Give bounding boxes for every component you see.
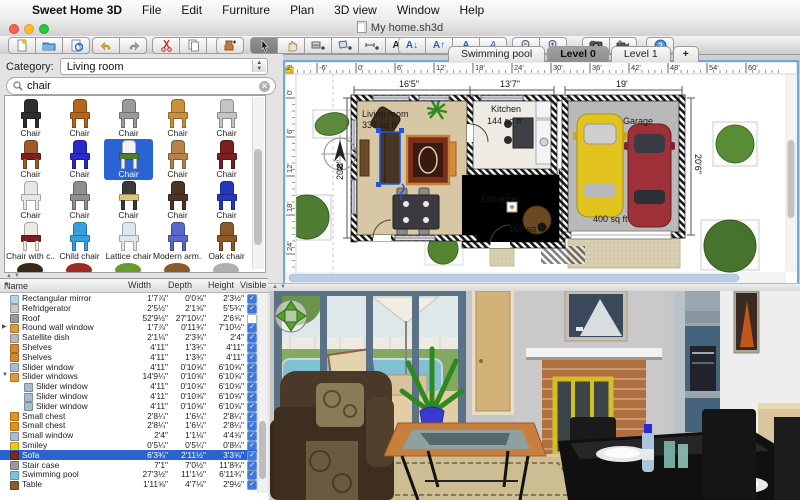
chair-icon (117, 99, 141, 128)
svg-text:400 sq ft: 400 sq ft (593, 214, 628, 224)
furniture-name: Shelves (22, 352, 52, 362)
chair-icon (19, 140, 43, 169)
dimension-value: 6'10⅝" (198, 371, 244, 381)
undo-button[interactable] (92, 37, 120, 54)
table-row[interactable]: Small window2'4"1'1⅛"4'4⅝"✓ (0, 430, 258, 440)
table-row[interactable]: Swimming pool27'3½"11'1½"6'11¾"✓ (0, 469, 258, 479)
catalog-item[interactable]: Chair (104, 139, 153, 180)
dimension-value: 6'10⅝" (198, 391, 244, 401)
svg-text:339 sq ft: 339 sq ft (362, 120, 397, 130)
svg-text:0': 0' (358, 63, 364, 72)
catalog-item[interactable]: Chair (202, 139, 251, 180)
svg-text:Kitchen: Kitchen (491, 104, 521, 114)
chair-icon (215, 99, 239, 128)
painting-right (734, 291, 759, 353)
catalog-item-label: Chair (104, 169, 153, 179)
svg-text:24': 24' (514, 63, 524, 72)
chair-icon (215, 222, 239, 251)
column-width[interactable]: Width (128, 280, 151, 290)
furniture-name: Swimming pool (22, 469, 79, 479)
catalog-item-label: Modern arm... (153, 251, 202, 261)
level-tabs: Swimming poolLevel 0Level 1+ (448, 46, 701, 62)
furniture-name: Slider window (36, 381, 88, 391)
chair-icon (117, 222, 141, 251)
create-dimensions-button[interactable] (359, 37, 386, 54)
catalog-item-label: Chair with c... (6, 251, 55, 261)
svg-text:24': 24' (285, 241, 294, 251)
category-label: Category: (6, 61, 54, 73)
tab-level-0[interactable]: Level 0 (547, 46, 609, 62)
dimension-value: 2'9½" (198, 479, 244, 489)
chair-icon (117, 181, 141, 210)
window-title: My home.sh3d (0, 21, 800, 34)
furniture-name: Round wall window (22, 322, 94, 332)
table-row[interactable]: Shelves4'11"1'3¾"4'11"✓ (0, 342, 258, 352)
painting (565, 291, 627, 341)
furniture-name: Sofa (22, 450, 39, 460)
chair-icon (215, 181, 239, 210)
svg-text:-12': -12' (285, 63, 293, 72)
svg-text:54': 54' (709, 63, 719, 72)
dimension-value: 6'11¾" (198, 469, 244, 479)
column-visible[interactable]: Visible (240, 280, 266, 290)
catalog-item-label: Chair (55, 210, 104, 220)
furniture-name: Small chest (22, 411, 65, 421)
category-select[interactable]: Living room ▲▼ (60, 58, 268, 75)
view-3d[interactable] (270, 291, 800, 500)
catalog-item[interactable]: Modern arm... (153, 221, 202, 262)
catalog-item[interactable]: Chair (55, 98, 104, 139)
table-row[interactable]: Roof52'9½"27'10¼"2'6⅝" (0, 313, 258, 323)
stepper-icon[interactable]: ▲▼ (252, 60, 266, 72)
dimension-value: 4'4⅝" (198, 430, 244, 440)
catalog-item[interactable]: Child chair (55, 221, 104, 262)
svg-text:48': 48' (670, 63, 680, 72)
catalog-item[interactable]: Chair (6, 139, 55, 180)
chair-icon (68, 99, 92, 128)
catalog-item-label: Chair (202, 169, 251, 179)
menu-item-help[interactable]: Help (450, 3, 495, 17)
chair-icon (166, 222, 190, 251)
menu-item-furniture[interactable]: Furniture (212, 3, 280, 17)
tab-level-1[interactable]: Level 1 (611, 46, 671, 62)
sort-ascending-icon: ▲ (4, 281, 10, 287)
menu-item-window[interactable]: Window (387, 3, 450, 17)
table-row[interactable]: Refridgerator2'5½"2'1⅝"5'5¾"✓ (0, 303, 258, 313)
svg-text:20'6": 20'6" (693, 154, 703, 174)
tv-bench[interactable] (360, 140, 369, 176)
catalog-item-label: Chair (6, 169, 55, 179)
cut-button[interactable] (152, 37, 180, 54)
select-button[interactable] (250, 37, 278, 54)
furniture-name: Small chest (22, 420, 65, 430)
svg-text:13'7": 13'7" (500, 79, 520, 89)
catalog-item[interactable]: Chair (153, 98, 202, 139)
expander-icon[interactable]: ▶ (2, 323, 7, 330)
furniture-name: Slider window (36, 391, 88, 401)
furniture-list-scrollbar[interactable] (257, 293, 268, 493)
svg-text:-6': -6' (319, 63, 328, 72)
yellow-car[interactable] (573, 114, 627, 217)
furniture-name: Satellite dish (22, 332, 70, 342)
dimension-value: 2'6⅝" (198, 313, 244, 323)
search-input[interactable] (27, 80, 259, 92)
catalog-item-label: Chair (153, 210, 202, 220)
menu-item-plan[interactable]: Plan (280, 3, 324, 17)
table-row[interactable]: Shelves4'11"1'3¾"4'11"✓ (0, 352, 258, 362)
catalog-grid: ChairChairChairChairChairChairChairChair… (4, 95, 266, 273)
furniture-name: Small window (22, 430, 73, 440)
furniture-name: Rectangular mirror (22, 293, 91, 303)
svg-text:36': 36' (592, 63, 602, 72)
chair-icon (19, 181, 43, 210)
chair-icon (19, 222, 43, 251)
catalog-item[interactable]: Chair (202, 98, 251, 139)
save-button[interactable] (63, 37, 90, 54)
catalog-item[interactable]: Oak chair (202, 221, 251, 262)
catalog-item[interactable] (66, 263, 92, 273)
table-row[interactable]: Slider window4'11"0'10⅝"6'10⅝"✓ (0, 362, 258, 372)
chair-icon (68, 140, 92, 169)
dimension-value: 2'8¼" (198, 420, 244, 430)
svg-text:Garage: Garage (623, 116, 653, 126)
furniture-name: Slider windows (22, 371, 78, 381)
svg-text:19': 19' (616, 79, 628, 89)
catalog-item[interactable]: Chair (202, 180, 251, 221)
furniture-catalog-panel: Category: Living room ▲▼ ✕ ChairChairCha… (0, 54, 283, 500)
sweet-home-3d-window: Sweet Home 3D FileEditFurniturePlan3D vi… (0, 0, 800, 500)
catalog-item-label: Chair (104, 210, 153, 220)
table-row[interactable]: Slider window4'11"0'10⅝"6'10⅝"✓ (0, 401, 258, 411)
pan-button[interactable] (278, 37, 305, 54)
dimension-value: 6'10⅝" (198, 381, 244, 391)
column-depth[interactable]: Depth (168, 280, 192, 290)
dimension-value: 2'4" (198, 332, 244, 342)
furniture-name: Roof (22, 313, 40, 323)
catalog-item-label: Chair (153, 128, 202, 138)
catalog-item-label: Oak chair (202, 251, 251, 261)
furniture-name: Table (22, 479, 42, 489)
document-icon (357, 21, 367, 33)
svg-text:6': 6' (285, 128, 294, 134)
furniture-name: Slider window (36, 401, 88, 411)
catalog-item-label: Chair (6, 210, 55, 220)
rug[interactable] (407, 136, 449, 184)
clear-search-icon[interactable]: ✕ (259, 81, 270, 92)
table-row[interactable]: Table1'11⅝"4'7⅛"2'9½"✓ (0, 479, 258, 489)
furniture-name: Shelves (22, 342, 52, 352)
catalog-item-label: Chair (55, 128, 104, 138)
chair-icon (166, 99, 190, 128)
dimension-value: 3'3⅝" (198, 450, 244, 460)
table-row[interactable]: Sofa6'3¾"2'11½"3'3⅝"✓ (0, 450, 258, 460)
svg-text:N: N (337, 162, 344, 172)
svg-text:16'5": 16'5" (399, 79, 419, 89)
table-row[interactable]: ▶Round wall window1'7⅞"0'11¾"7'10½"✓ (0, 322, 258, 332)
chair-icon (68, 181, 92, 210)
interior-door (472, 291, 514, 415)
room-label: Living room (362, 109, 409, 119)
catalog-item[interactable] (213, 263, 239, 273)
table-row[interactable]: Stair case7'1"7'0½"11'8¾"✓ (0, 460, 258, 470)
catalog-item[interactable]: Chair (153, 139, 202, 180)
svg-text:12': 12' (436, 63, 446, 72)
svg-text:30': 30' (553, 63, 563, 72)
svg-text:Entrance: Entrance (481, 194, 517, 204)
app-menu[interactable]: Sweet Home 3D (22, 3, 132, 17)
dimension-value: 7'10½" (198, 322, 244, 332)
catalog-item-label: Chair (104, 128, 153, 138)
menu-item-file[interactable]: File (132, 3, 171, 17)
dimension-value: 4'11" (198, 342, 244, 352)
chair-icon (68, 222, 92, 251)
catalog-item[interactable]: Chair (55, 139, 104, 180)
table-row[interactable]: ▼Slider windows14'9¼"0'10⅝"6'10⅝"✓ (0, 371, 258, 381)
plan-view[interactable]: Living room 339 sq ft Kitchen 144 sq ft … (285, 62, 797, 283)
svg-text:42': 42' (631, 63, 641, 72)
furniture-name: Refridgerator (22, 303, 71, 313)
dimension-value: 4'11" (198, 352, 244, 362)
add-furniture-button[interactable] (216, 37, 244, 54)
catalog-item[interactable]: Lattice chair (104, 221, 153, 262)
decrease-text-size-button[interactable]: A↓ (398, 37, 426, 54)
dimension-value: 0'8¼" (198, 440, 244, 450)
svg-text:0': 0' (285, 89, 294, 95)
chair-icon (166, 181, 190, 210)
search-field[interactable]: ✕ (6, 77, 276, 95)
expander-icon[interactable]: ▼ (2, 372, 8, 378)
svg-text:12': 12' (285, 163, 294, 173)
dimension-value: 2'3½" (198, 293, 244, 303)
create-rooms-button[interactable] (332, 37, 359, 54)
dimension-value: 6'10⅝" (198, 362, 244, 372)
dining-table[interactable] (393, 188, 439, 236)
dimension-value: 5'5¾" (198, 303, 244, 313)
furniture-name: Slider window (22, 362, 74, 372)
svg-text:18': 18' (475, 63, 485, 72)
catalog-item-label: Chair (55, 169, 104, 179)
table-row[interactable]: Small chest2'8¼"1'6¼"2'8¼"✓ (0, 411, 258, 421)
catalog-item[interactable]: Chair (6, 98, 55, 139)
dimension-value: 6'10⅝" (198, 401, 244, 411)
search-icon (13, 81, 23, 91)
catalog-item[interactable] (115, 263, 141, 273)
title-bar[interactable]: My home.sh3d (0, 19, 800, 37)
catalog-scrollbar[interactable] (252, 97, 264, 269)
catalog-item-label: Lattice chair (104, 251, 153, 261)
chair-icon (215, 140, 239, 169)
catalog-item[interactable]: Chair (153, 180, 202, 221)
menu-item-3d-view[interactable]: 3D view (324, 3, 387, 17)
create-walls-button[interactable] (305, 37, 332, 54)
visible-checkbox[interactable]: ✓ (247, 480, 257, 490)
catalog-item-label: Chair (202, 128, 251, 138)
open-button[interactable] (36, 37, 63, 54)
dimension-value: 11'8¾" (198, 460, 244, 470)
chair-icon (19, 99, 43, 128)
table-row[interactable]: Small chest2'8¼"1'6¼"2'8¼"✓ (0, 420, 258, 430)
catalog-item[interactable] (17, 263, 43, 273)
table-row[interactable]: Satellite dish2'1⅛"2'3¾"2'4"✓ (0, 332, 258, 342)
table-row[interactable]: Slider window4'11"0'10⅝"6'10⅝"✓ (0, 381, 258, 391)
copy-button[interactable] (180, 37, 207, 54)
catalog-item-label: Chair (202, 210, 251, 220)
catalog-item[interactable]: Chair with c... (6, 221, 55, 262)
menu-bar: Sweet Home 3D FileEditFurniturePlan3D vi… (0, 0, 800, 20)
svg-text:144 sq ft: 144 sq ft (487, 116, 522, 126)
chair-icon (166, 140, 190, 169)
catalog-item[interactable]: Chair (104, 98, 153, 139)
tab-swimming-pool[interactable]: Swimming pool (448, 46, 545, 62)
furniture-name: Smiley (22, 440, 47, 450)
menu-item-edit[interactable]: Edit (171, 3, 212, 17)
catalog-item-label: Child chair (55, 251, 104, 261)
dimension-value: 2'8¼" (198, 411, 244, 421)
svg-text:60': 60' (748, 63, 758, 72)
svg-text:169 sq ft: 169 sq ft (509, 224, 544, 234)
svg-text:6': 6' (397, 63, 403, 72)
furniture-list: Name ▲ Width Depth Height Visible Rectan… (0, 278, 268, 500)
catalog-item[interactable]: Chair (104, 180, 153, 221)
chair-icon (117, 140, 141, 169)
new-document-button[interactable] (8, 37, 36, 54)
add-level-tab[interactable]: + (673, 46, 699, 62)
redo-button[interactable] (120, 37, 147, 54)
furniture-list-header: Name ▲ Width Depth Height Visible (0, 279, 268, 293)
armchair-3d (270, 371, 394, 500)
red-car[interactable] (624, 124, 675, 227)
catalog-item[interactable]: Chair (55, 180, 104, 221)
column-height[interactable]: Height (208, 280, 234, 290)
table-row[interactable]: Slider window4'11"0'10⅝"6'10⅝"✓ (0, 391, 258, 401)
table-row[interactable]: Rectangular mirror1'7⅞"0'0⅝"2'3½"✓ (0, 293, 258, 303)
svg-text:18': 18' (285, 202, 294, 212)
furniture-name: Stair case (22, 460, 59, 470)
stoop (541, 246, 585, 264)
catalog-item-label: Chair (6, 128, 55, 138)
table-icon (10, 481, 19, 490)
catalog-item[interactable] (164, 263, 190, 273)
table-row[interactable]: Smiley0'5¼"0'5¼"0'8¼"✓ (0, 440, 258, 450)
catalog-item-label: Chair (153, 169, 202, 179)
catalog-item[interactable]: Chair (6, 180, 55, 221)
navigation-arrows-icon[interactable] (275, 300, 307, 332)
